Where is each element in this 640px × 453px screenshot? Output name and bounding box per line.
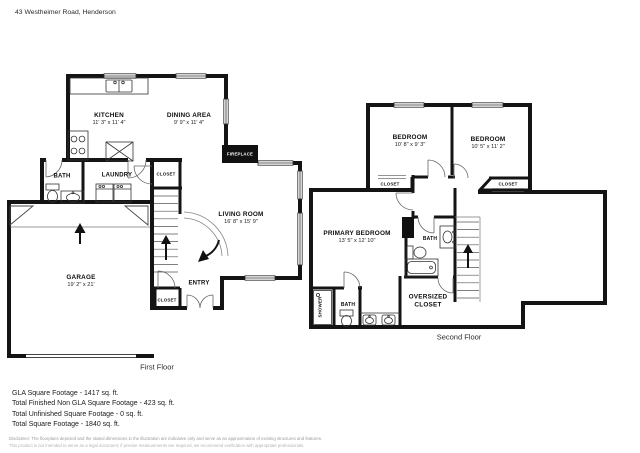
first-floor-title: First Floor [140, 364, 174, 373]
room-label-closet-upper: CLOSET [156, 171, 175, 176]
room-label-entry: ENTRY [188, 280, 209, 287]
room-label-laundry: LAUNDRY [102, 172, 133, 179]
living-name: LIVING ROOM [218, 211, 263, 219]
room-label-dining: DINING AREA 9' 9" x 11' 4" [167, 112, 211, 126]
toilet-icon-bath3 [340, 310, 353, 327]
stat-non-gla: Total Finished Non GLA Square Footage - … [12, 400, 175, 407]
chase-block [402, 217, 414, 238]
bedroom-right-dims: 10' 5" x 11' 2" [471, 143, 506, 150]
dining-name: DINING AREA [167, 112, 211, 120]
floor-plan-drawing [0, 0, 640, 453]
room-label-bath3: BATH [341, 303, 355, 309]
address-title: 43 Westheimer Road, Henderson [15, 9, 116, 17]
second-floor-plan [309, 103, 607, 329]
entry-direction-arrow-icon [198, 240, 219, 262]
room-label-bedroom-right: BEDROOM 10' 5" x 11' 2" [471, 136, 506, 150]
room-label-oversized-closet: OVERSIZED CLOSET [409, 293, 448, 308]
room-label-primary-bedroom: PRIMARY BEDROOM 13' 5" x 12' 10" [323, 230, 390, 244]
double-sink-vanity-icon [360, 313, 400, 325]
living-dims: 16' 8" x 15' 9" [218, 218, 263, 225]
dining-dims: 9' 9" x 11' 4" [167, 119, 211, 126]
stairs2-up-arrow-icon [463, 244, 473, 268]
stairs-up-arrow-icon [161, 235, 171, 260]
second-floor-title: Second Floor [437, 334, 482, 343]
room-label-closet-lower: CLOSET [157, 297, 176, 302]
bathtub-icon [405, 259, 438, 276]
stat-total: Total Square Footage - 1840 sq. ft. [12, 421, 120, 428]
kitchen-sink-icon [106, 80, 132, 92]
primary-bedroom-name: PRIMARY BEDROOM [323, 230, 390, 238]
room-label-living: LIVING ROOM 16' 8" x 15' 9" [218, 211, 263, 225]
room-label-kitchen: KITCHEN 11' 3" x 11' 4" [93, 112, 126, 126]
bedroom-left-name: BEDROOM [393, 134, 428, 142]
garage-name: GARAGE [66, 274, 95, 282]
room-label-closet2-left: CLOSET [380, 181, 399, 186]
first-floor-stairs-icon [154, 196, 178, 272]
washer-dryer-icon [96, 184, 131, 202]
garage-up-arrow-icon [75, 223, 86, 244]
primary-bedroom-dims: 13' 5" x 12' 10" [323, 237, 390, 244]
room-label-shower: SHOWER [317, 297, 322, 318]
room-label-bath1: BATH [53, 173, 70, 180]
floorplan-page: 43 Westheimer Road, Henderson KITCHEN 11… [0, 0, 640, 453]
bedroom-left-dims: 10' 8" x 9' 3" [393, 141, 428, 148]
second-floor-walls [309, 103, 607, 329]
room-label-fireplace: FIREPLACE [227, 151, 253, 156]
room-label-bedroom-left: BEDROOM 10' 8" x 9' 3" [393, 134, 428, 148]
kitchen-name: KITCHEN [93, 112, 126, 120]
oversized-closet-line1: OVERSIZED [409, 293, 448, 301]
toilet-icon-bath2 [407, 246, 426, 259]
disclaimer-line-1: Disclaimer: The floorplans depicted and … [9, 436, 322, 441]
stove-icon [68, 131, 88, 160]
disclaimer-line-2: This product is not intended to serve as… [9, 443, 304, 448]
oversized-closet-line2: CLOSET [409, 301, 448, 309]
room-label-closet2-right: CLOSET [498, 181, 517, 186]
room-label-bath2: BATH [423, 237, 437, 243]
stat-unfinished: Total Unfinished Square Footage - 0 sq. … [12, 411, 143, 418]
kitchen-dims: 11' 3" x 11' 4" [93, 119, 126, 126]
garage-dims: 19' 2" x 21' [66, 281, 95, 288]
bedroom-right-name: BEDROOM [471, 136, 506, 144]
stat-gla: GLA Square Footage - 1417 sq. ft. [12, 390, 119, 397]
room-label-garage: GARAGE 19' 2" x 21' [66, 274, 95, 288]
toilet-icon-bath1 [46, 184, 59, 203]
